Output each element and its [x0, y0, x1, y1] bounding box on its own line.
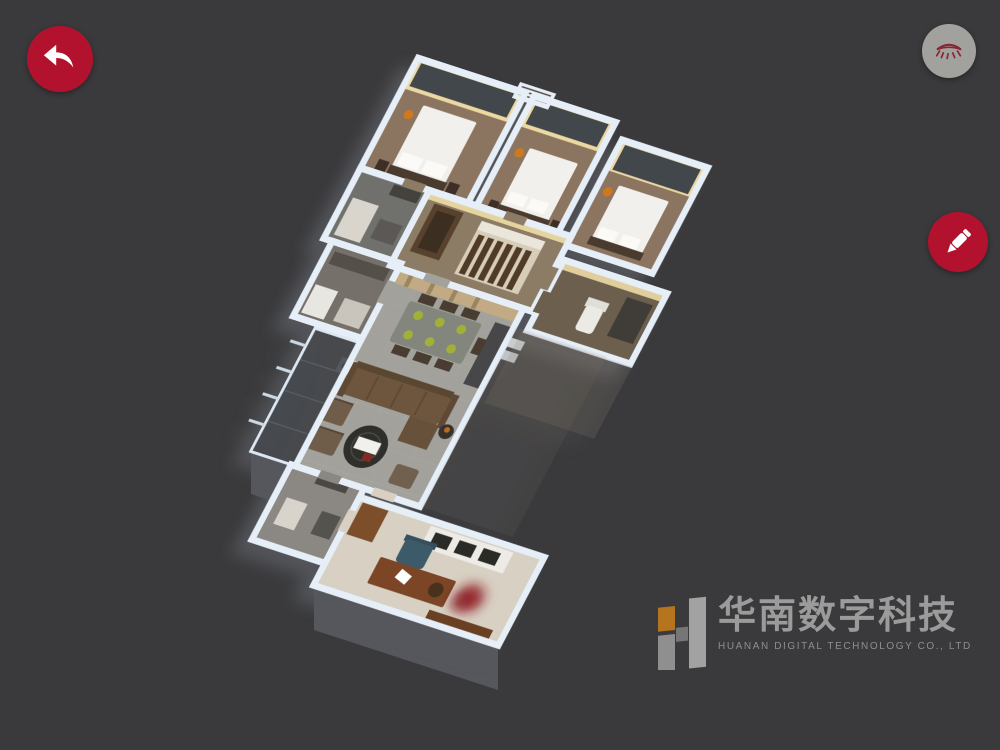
railing-support	[290, 341, 305, 346]
logo-h-mark-icon	[656, 594, 708, 670]
apartment[interactable]	[167, 50, 753, 645]
pen-button[interactable]	[928, 212, 988, 272]
back-button[interactable]	[27, 26, 93, 92]
closed-eye-icon	[932, 34, 966, 68]
visibility-button[interactable]	[922, 24, 976, 78]
railing-support	[277, 367, 292, 372]
viewer-canvas[interactable]: 华南数字科技 HUANAN DIGITAL TECHNOLOGY CO., LT…	[0, 0, 1000, 750]
railing-support	[249, 420, 264, 425]
company-logo: 华南数字科技 HUANAN DIGITAL TECHNOLOGY CO., LT…	[656, 594, 966, 678]
pen-icon	[940, 224, 976, 260]
logo-subtitle: HUANAN DIGITAL TECHNOLOGY CO., LTD	[718, 641, 972, 652]
railing-support	[263, 394, 278, 399]
logo-title: 华南数字科技	[718, 594, 972, 638]
back-arrow-icon	[41, 40, 79, 78]
